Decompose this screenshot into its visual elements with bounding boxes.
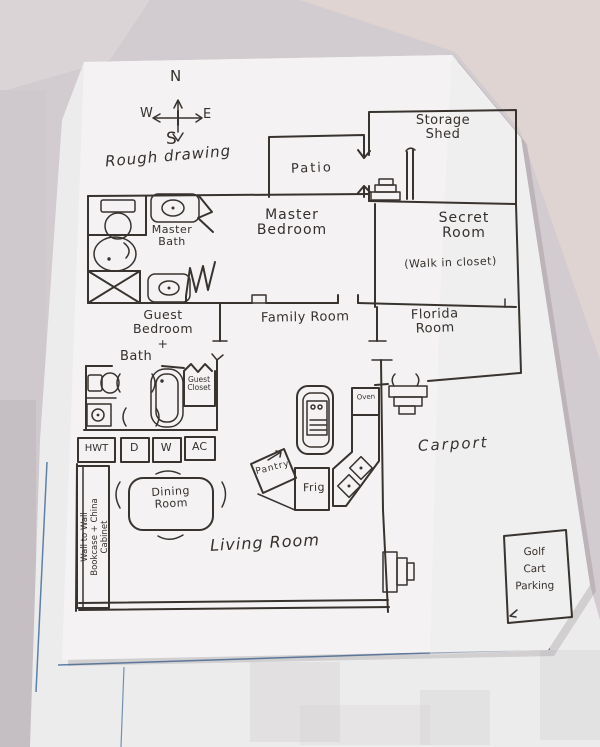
label-ac: AC (185, 441, 214, 453)
label-guest-bedroom: Guest Bedroom + (102, 308, 224, 351)
label-florida-room: Florida Room (399, 307, 472, 338)
label-family-room: Family Room (261, 310, 350, 326)
label-master-bedroom: Master Bedroom (238, 208, 346, 239)
label-bookcase: Wall to Wall Bookcase + China Cabinet (80, 468, 110, 606)
label-storage-shed: Storage Shed (398, 114, 488, 143)
compass-east-label: E (203, 108, 212, 122)
floorplan-drawing (0, 0, 600, 747)
compass-north-label: N (170, 68, 182, 85)
label-patio: Patio (291, 161, 333, 177)
label-dryer: D (121, 442, 148, 454)
label-washer: W (153, 442, 180, 454)
label-guest-bath: Bath (120, 350, 152, 364)
compass-west-label: W (140, 107, 153, 121)
label-oven: Oven (354, 393, 378, 402)
label-hwt: HWT (79, 443, 114, 454)
label-golf-cart-parking: Golf Cart Parking (506, 544, 564, 595)
photo-of-floorplan-sketch: N W E S Rough drawing Patio Storage Shed… (0, 0, 600, 747)
label-secret-room: Secret Room (420, 211, 508, 242)
label-dining-room: Dining Room (138, 484, 203, 512)
label-carport: Carport (418, 434, 489, 454)
label-master-bath: Master Bath (146, 224, 198, 248)
label-fridge: Frig (299, 481, 329, 494)
label-guest-closet: Guest Closet (184, 376, 214, 393)
